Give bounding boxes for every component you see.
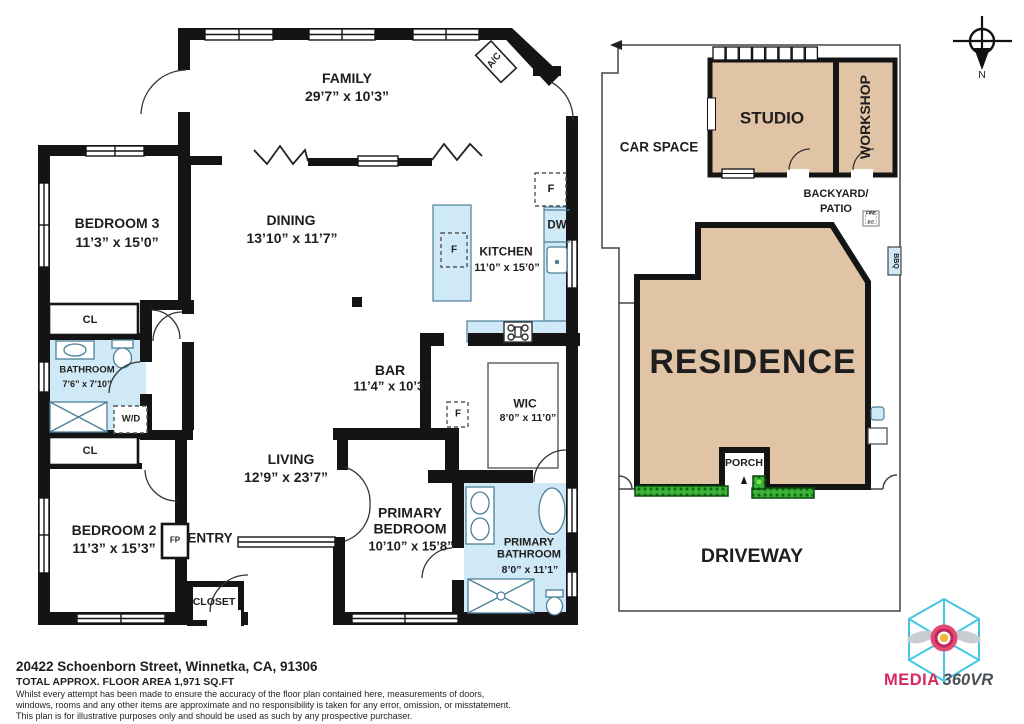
backyard-label: BACKYARD/: [804, 188, 869, 200]
porch-step-marker: [741, 476, 747, 484]
room-label-bathroom: BATHROOM: [59, 366, 114, 377]
fire-pit-line2: PIT: [866, 220, 876, 224]
room-label-wic: WIC: [513, 397, 536, 410]
fridge-label-dining: F: [451, 244, 457, 255]
room-label-family: FAMILY: [322, 71, 372, 87]
front-door-opening: [207, 610, 241, 626]
car-space-label: CAR SPACE: [620, 139, 699, 154]
entry-label: ENTRY: [187, 530, 232, 545]
room-dims-bathroom: 7’6” x 7’10”: [62, 379, 111, 389]
room-dims-bar: 11’4” x 10’3”: [353, 380, 430, 395]
room-dims-family: 29’7” x 10’3”: [305, 89, 389, 105]
entry-closet-label: CLOSET: [193, 597, 236, 609]
washer-dryer-label: W/D: [122, 415, 140, 426]
dishwasher-label: DW: [547, 220, 566, 233]
logo-cube: [906, 599, 982, 681]
room-dims-wic: 8’0” x 11’0”: [500, 413, 557, 425]
fire-pit-line1: FIRE: [866, 211, 876, 215]
porch-label: PORCH: [725, 458, 763, 470]
fridge-label-kitchen: F: [548, 183, 555, 195]
closet-label-top: CL: [83, 314, 98, 326]
boundary-arrow: [610, 40, 622, 50]
driveway-label: DRIVEWAY: [701, 546, 803, 568]
compass-rose: [953, 16, 1012, 70]
room-label-kitchen: KITCHEN: [479, 245, 532, 258]
room-label-dining: DINING: [267, 213, 316, 229]
fridge-label-bar: F: [455, 408, 461, 419]
logo-wordmark: MEDIA360VR: [884, 671, 993, 690]
disclaimer-line-1: Whilst every attempt has been made to en…: [16, 689, 484, 699]
floor-area-line: TOTAL APPROX. FLOOR AREA 1,971 SQ.FT: [16, 676, 234, 688]
room-label-bedroom2: BEDROOM 2: [72, 523, 157, 539]
residence-label: RESIDENCE: [649, 343, 856, 381]
room-dims-kitchen: 11’0” x 15’0”: [474, 262, 539, 274]
patio-label: PATIO: [820, 203, 852, 215]
logo-media-text: MEDIA: [884, 671, 940, 689]
room-dims-primary-bedroom: 10’10” x 15’8”: [368, 540, 453, 555]
fireplace-label: FP: [170, 537, 180, 546]
disclaimer-line-2: windows, rooms and any other items are a…: [16, 700, 511, 710]
room-dims-bedroom2: 11’3” x 15’3”: [72, 541, 155, 557]
room-label-primary-bathroom: PRIMARY BATHROOM: [484, 537, 574, 562]
room-dims-dining: 13’10” x 11’7”: [246, 231, 337, 247]
address-line: 20422 Schoenborn Street, Winnetka, CA, 9…: [16, 659, 318, 674]
room-label-primary-bedroom: PRIMARY BEDROOM: [355, 505, 465, 536]
room-label-bedroom3: BEDROOM 3: [75, 216, 160, 232]
floor-plan-canvas: FAMILY 29’7” x 10’3” DINING 13’10” x 11’…: [0, 0, 1024, 724]
room-label-bar: BAR: [375, 363, 405, 379]
logo-360vr-text: 360VR: [943, 671, 993, 689]
compass-north-label: N: [978, 70, 986, 82]
fire-pit-label: FIRE PIT: [861, 209, 882, 227]
room-dims-living: 12’9” x 23’7”: [244, 470, 328, 486]
room-dims-primary-bathroom: 8’0” x 11’1”: [502, 565, 559, 577]
closet-label-bottom: CL: [83, 445, 98, 457]
studio-label: STUDIO: [740, 108, 804, 127]
room-dims-bedroom3: 11’3” x 15’0”: [75, 235, 158, 251]
bbq-label: BBQ: [891, 253, 899, 269]
room-label-living: LIVING: [268, 452, 315, 468]
workshop-label: WORKSHOP: [858, 75, 874, 159]
disclaimer-line-3: This plan is for illustrative purposes o…: [16, 711, 412, 721]
